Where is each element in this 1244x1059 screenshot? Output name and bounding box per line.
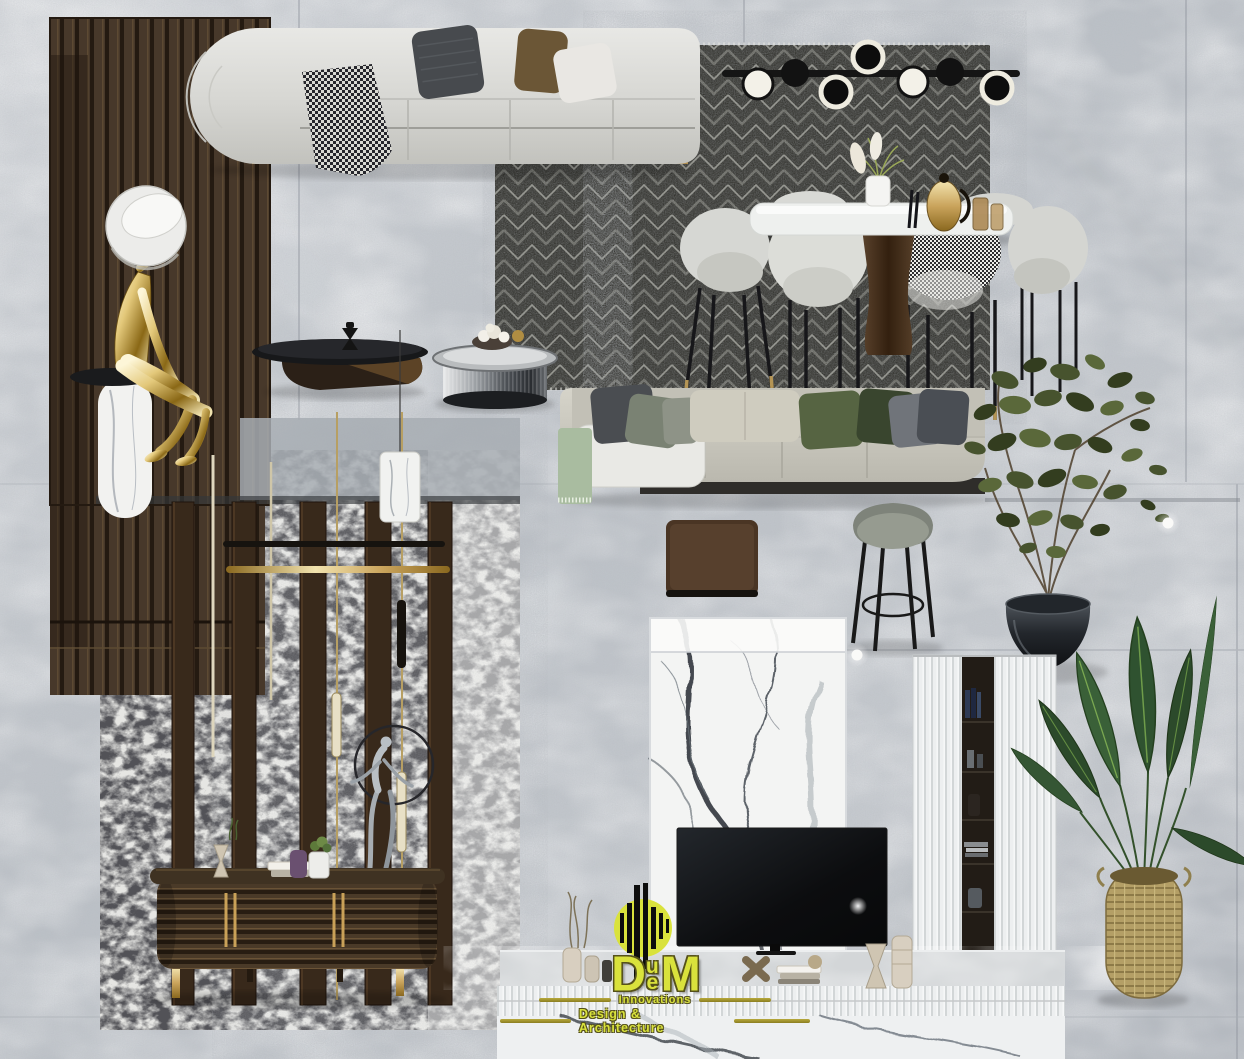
tagline-bar-left bbox=[500, 1019, 571, 1023]
coffee-pot bbox=[927, 181, 961, 231]
green-throw bbox=[558, 428, 592, 504]
duem-logo: D u e M Innovations Design & Architectur… bbox=[500, 876, 810, 1036]
logo-letter-m: M bbox=[661, 954, 699, 997]
ceiling-spotlight-1 bbox=[1156, 511, 1180, 535]
horizontal-black-bar bbox=[223, 541, 445, 547]
logo-tagline-2: Design & Architecture bbox=[500, 1007, 810, 1035]
succulent-pot bbox=[309, 852, 329, 878]
curved-sofa bbox=[187, 24, 700, 180]
tagline-2-text: Design & Architecture bbox=[579, 1007, 726, 1035]
tagline-bar-left bbox=[539, 998, 611, 1002]
logo-letter-d: D bbox=[611, 954, 644, 997]
tagline-1-text: Innovations bbox=[619, 994, 692, 1006]
marble-pendant-lamp bbox=[380, 452, 420, 522]
horizontal-gold-bar bbox=[226, 566, 450, 573]
leather-panel bbox=[666, 520, 758, 597]
logo-wordmark: D u e M bbox=[570, 954, 740, 996]
tagline-bar-right bbox=[734, 1019, 810, 1023]
pillow-green bbox=[798, 390, 864, 450]
glass bbox=[973, 198, 988, 230]
marble-pedestal bbox=[98, 378, 152, 518]
pillow-dark-gray bbox=[411, 24, 486, 101]
pillow-white bbox=[552, 41, 618, 104]
logo-tagline-1: Innovations bbox=[500, 994, 810, 1006]
logo-letter-e: e bbox=[646, 975, 658, 991]
living-room-render: D u e M Innovations Design & Architectur… bbox=[0, 0, 1244, 1059]
white-vase bbox=[866, 176, 890, 206]
purple-vase bbox=[290, 850, 307, 878]
tagline-bar-right bbox=[699, 998, 771, 1002]
woven-basket bbox=[1098, 867, 1190, 998]
tall-cabinet bbox=[913, 655, 1056, 955]
ceiling-spotlight-2 bbox=[845, 643, 869, 667]
bowl-head-lamp bbox=[106, 186, 188, 269]
table-pedestal bbox=[862, 228, 915, 355]
lamp-globe bbox=[743, 69, 773, 99]
